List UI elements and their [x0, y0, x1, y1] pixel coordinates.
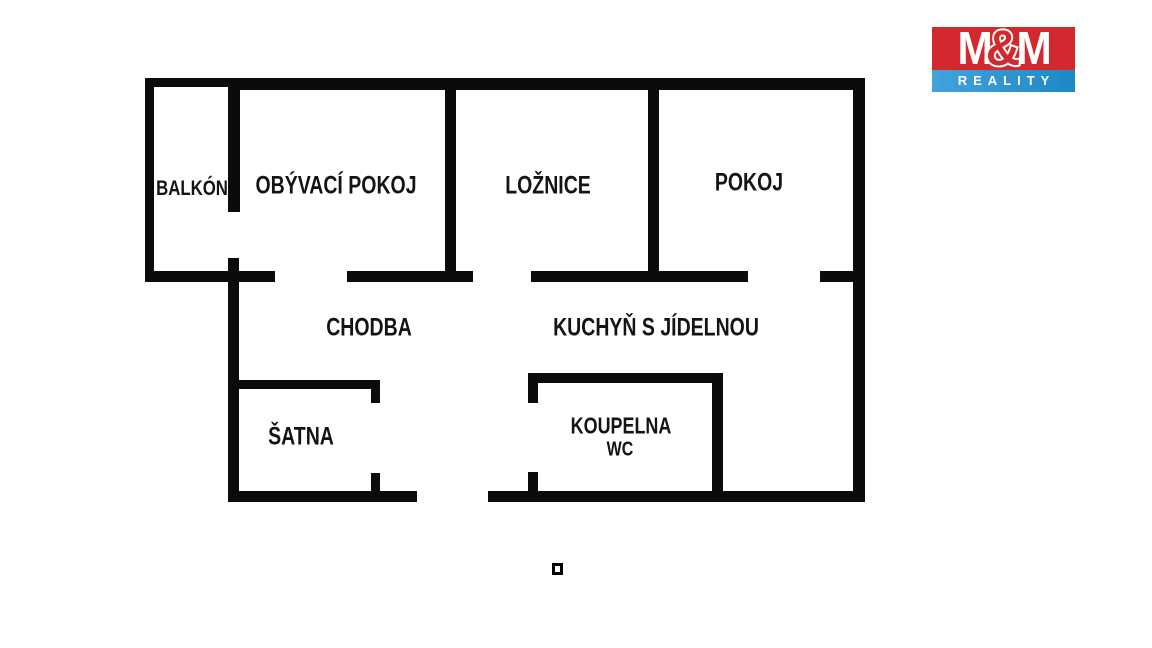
- mm-reality-logo: M & M REALITY: [932, 27, 1075, 92]
- wall-bottom-left: [228, 491, 417, 502]
- wall-koupelna-right: [712, 373, 723, 502]
- wall-top: [228, 78, 865, 90]
- wall-right: [853, 78, 865, 502]
- room-label-satna: ŠATNA: [268, 423, 334, 452]
- logo-letter-m-right: M: [1016, 27, 1049, 70]
- wall-balcony-divider-upper: [228, 78, 240, 212]
- wall-satna-stub-upper: [371, 380, 380, 403]
- wall-mid-segment-balcony: [145, 271, 275, 282]
- wall-divider-loznice-pokoj: [648, 90, 659, 282]
- room-label-loznice: LOŽNICE: [505, 172, 591, 201]
- wall-satna-top: [228, 380, 380, 389]
- room-label-kuchyn: KUCHYŇ S JÍDELNOU: [553, 314, 759, 343]
- logo-ampersand: &: [986, 27, 1020, 70]
- wall-mid-segment-pokoj: [820, 271, 865, 282]
- room-label-chodba: CHODBA: [326, 314, 412, 343]
- wall-mid-segment-loznice: [531, 271, 748, 282]
- logo-red-panel: M & M: [932, 27, 1075, 70]
- room-label-obyvaci: OBÝVACÍ POKOJ: [255, 172, 416, 201]
- room-label-pokoj: POKOJ: [715, 169, 783, 198]
- wall-divider-obyvaci-loznice: [445, 90, 456, 282]
- wall-balcony-top: [145, 78, 240, 87]
- wall-koupelna-stub-lower: [528, 472, 538, 502]
- logo-blue-panel: REALITY: [932, 70, 1075, 92]
- room-label-wc: WC: [607, 439, 634, 462]
- wall-satna-stub-lower: [371, 473, 380, 502]
- logo-reality-text: REALITY: [952, 70, 1056, 92]
- wall-koupelna-top: [528, 373, 723, 383]
- wall-balcony-left: [145, 78, 154, 278]
- wall-koupelna-stub-upper: [528, 373, 538, 403]
- scale-marker-square: [552, 563, 563, 575]
- floorplan-canvas: BALKÓN OBÝVACÍ POKOJ LOŽNICE POKOJ CHODB…: [0, 0, 1152, 648]
- room-label-koupelna: KOUPELNA: [571, 413, 672, 440]
- room-label-balkon: BALKÓN: [156, 177, 228, 201]
- wall-bottom-right: [488, 491, 865, 502]
